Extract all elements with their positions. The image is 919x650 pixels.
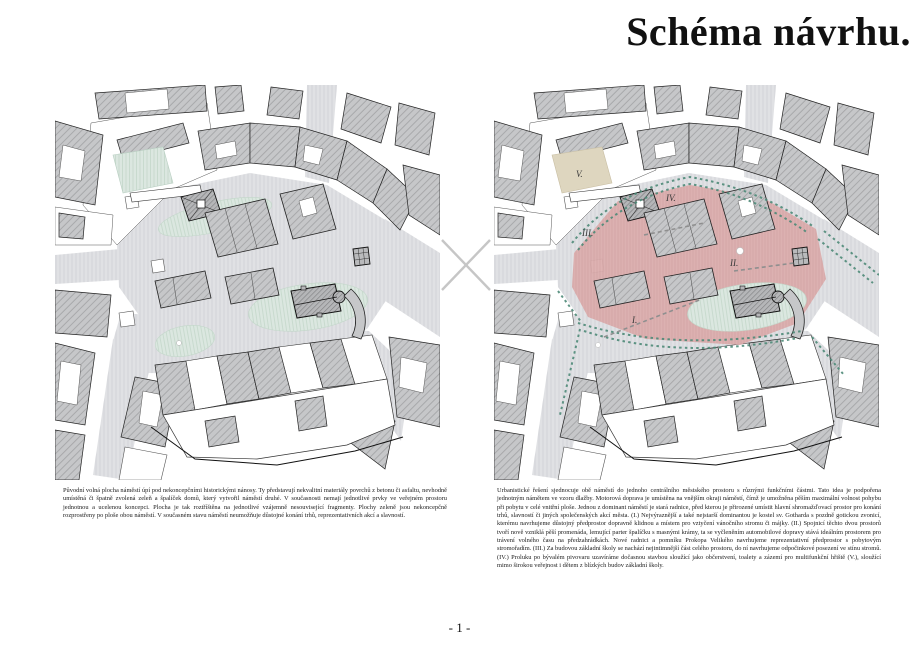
area-label-v: V.: [576, 169, 583, 179]
area-label-ii: II.: [729, 258, 738, 268]
right-figure-caption: Urbanistické řešení sjednocuje obě náměs…: [497, 487, 881, 570]
area-label-iv: IV.: [665, 193, 676, 203]
area-label-i: I.: [631, 315, 637, 325]
transformation-x-mark: [438, 236, 494, 294]
right-map-proposal: I. II. III. IV. V.: [494, 85, 879, 480]
page-title: Schéma návrhu.: [626, 8, 911, 55]
document-page: Schéma návrhu.: [0, 0, 919, 650]
small-white-dot: [596, 343, 601, 348]
page-number: - 1 -: [0, 620, 919, 636]
maypole-dot: [737, 248, 744, 255]
left-map-current-state: [55, 85, 440, 480]
area-label-iii: III.: [581, 228, 593, 238]
fountain-dot: [177, 341, 182, 346]
left-figure-caption: Původní volná plocha náměstí úpí pod nek…: [63, 487, 447, 520]
